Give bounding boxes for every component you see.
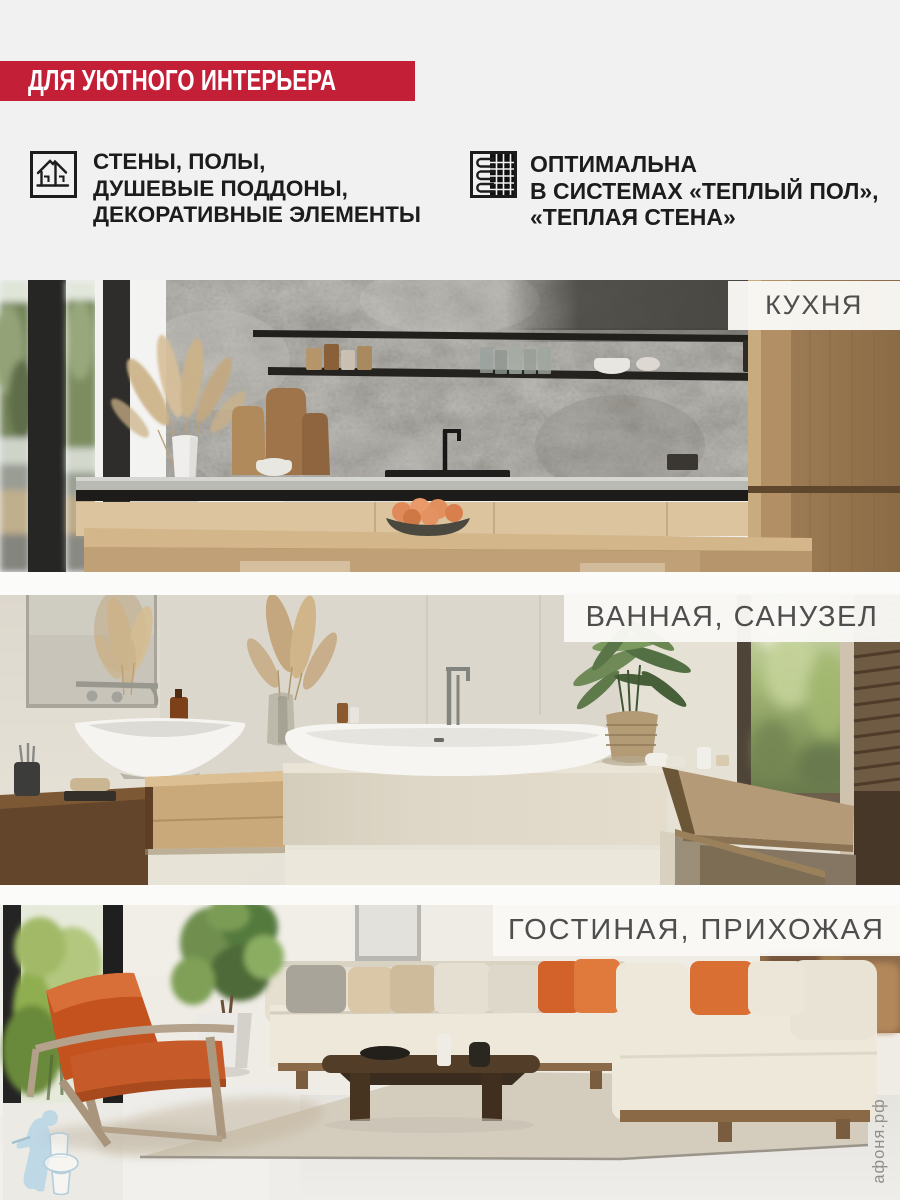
svg-text:афоня.рф: афоня.рф xyxy=(870,1098,888,1183)
